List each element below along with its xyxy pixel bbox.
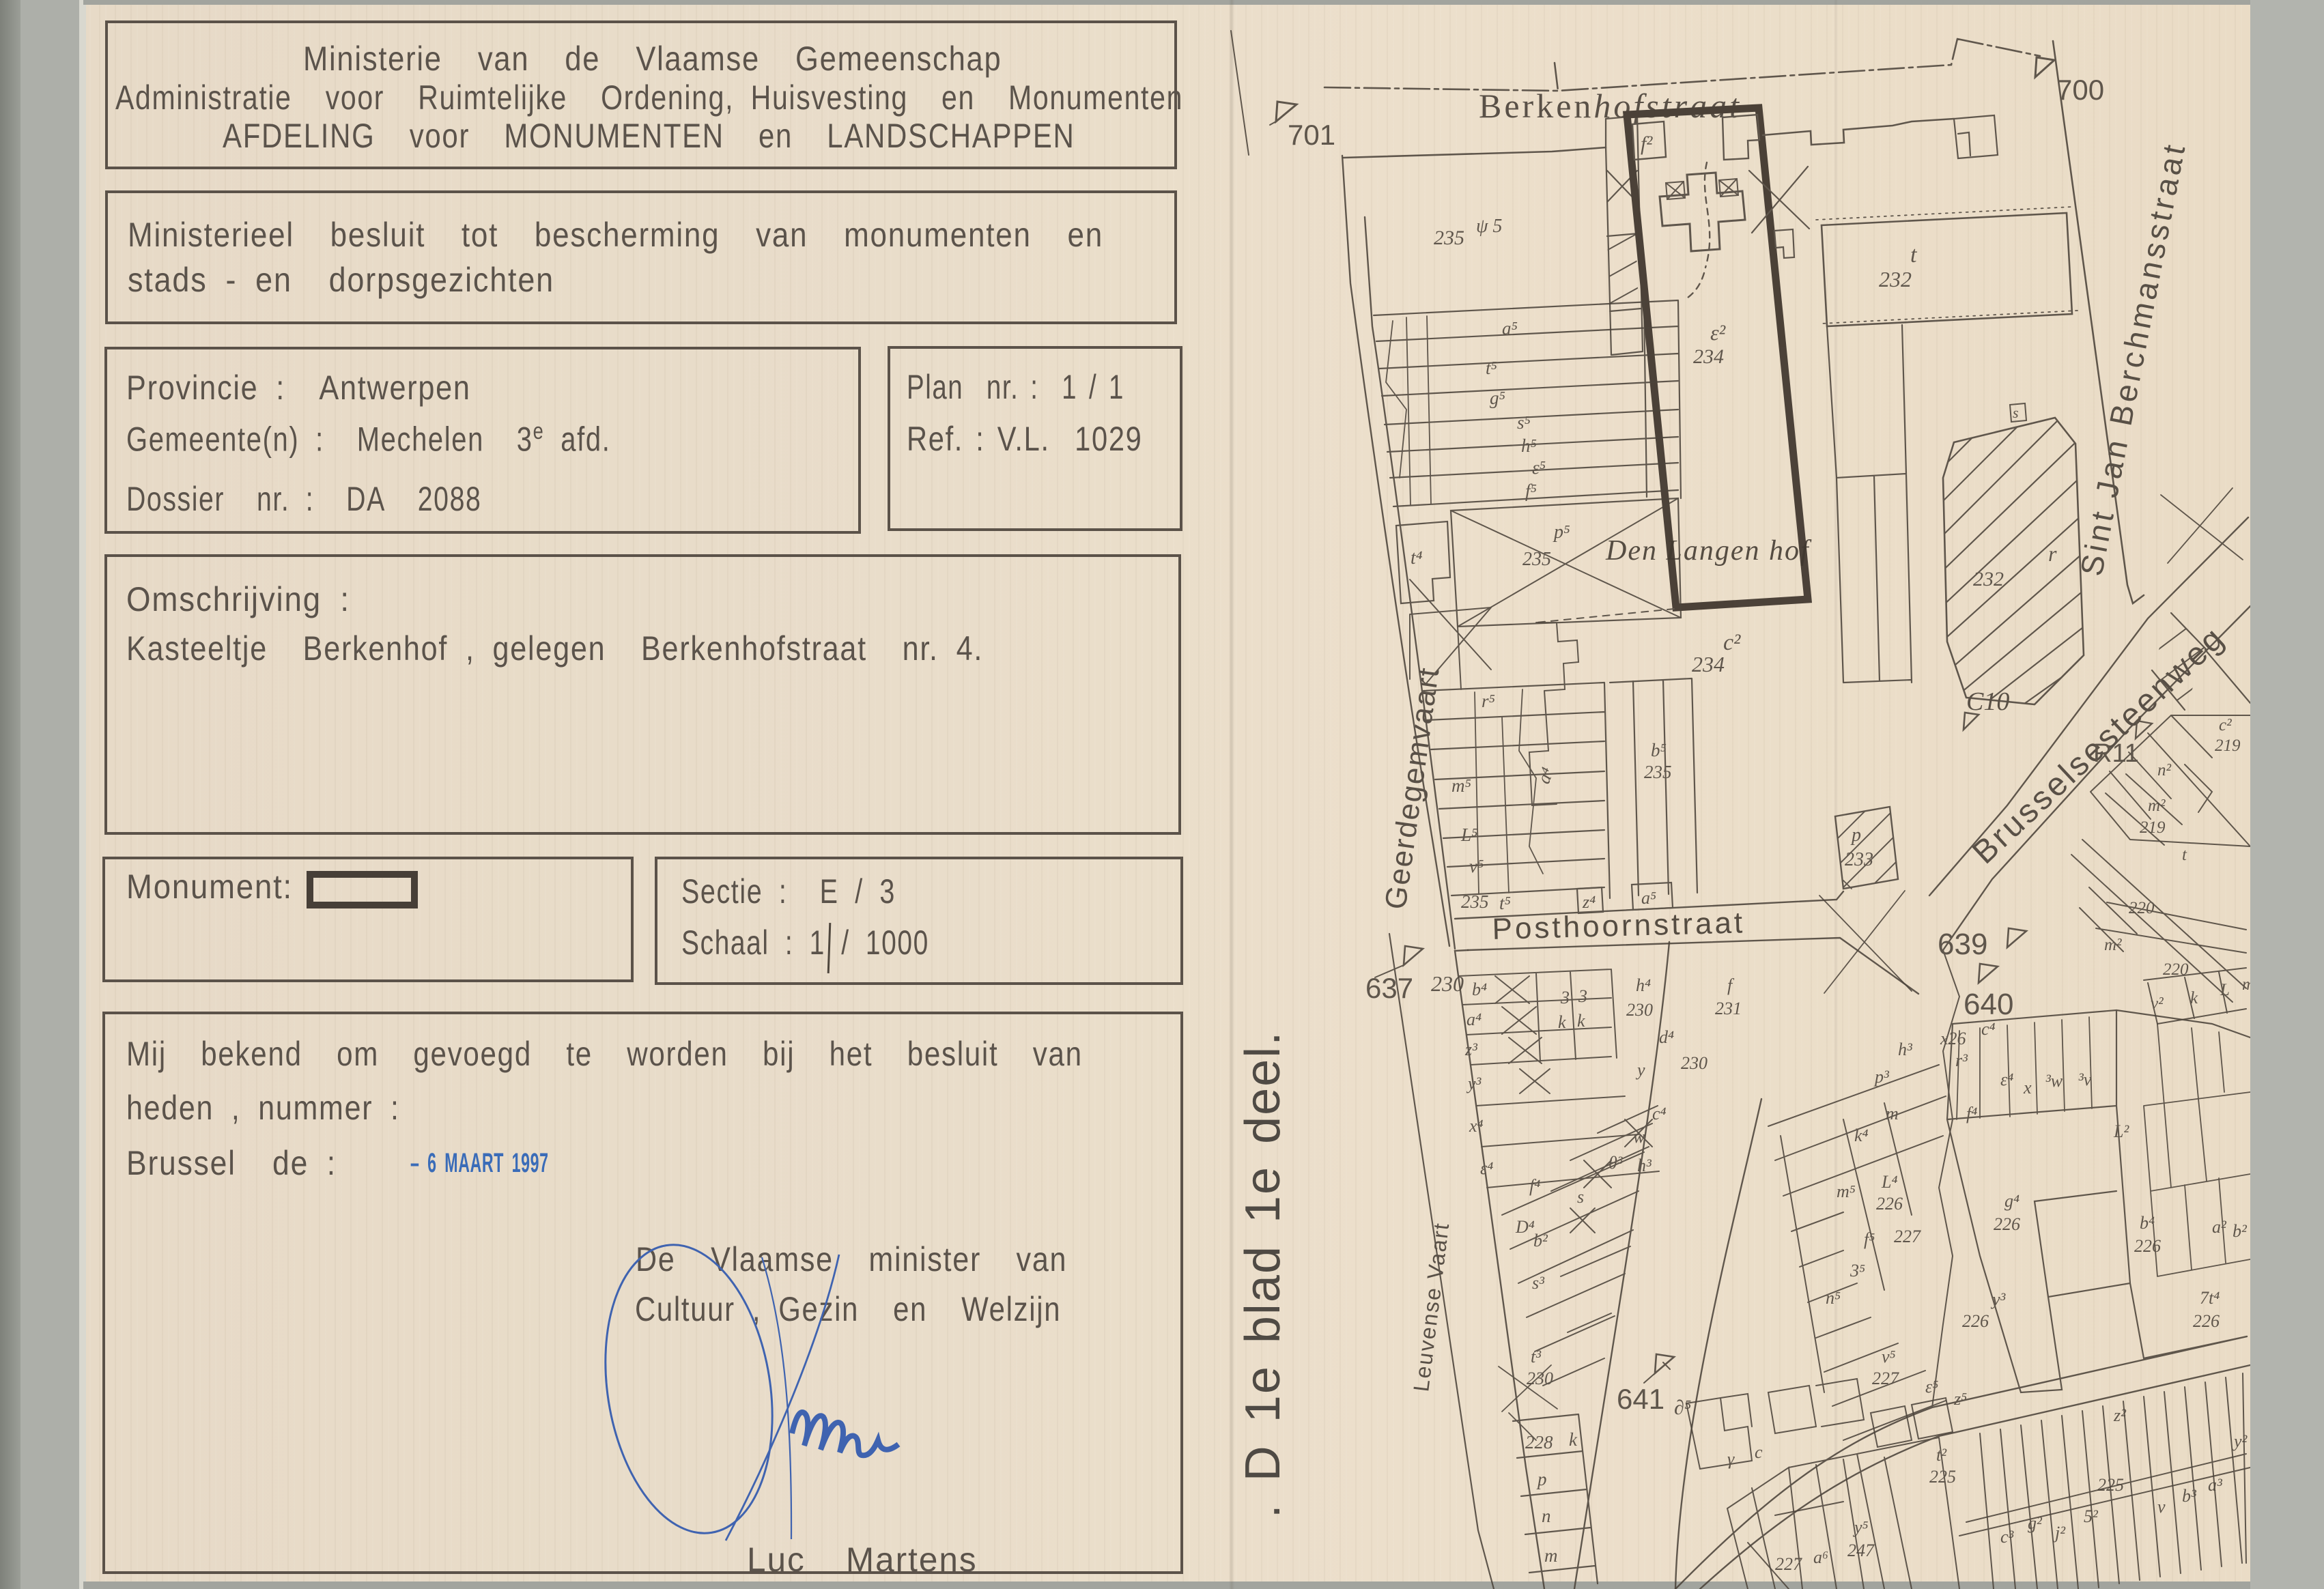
svg-text:227: 227 <box>1894 1227 1921 1246</box>
svg-text:m: m <box>1886 1104 1899 1123</box>
svg-text:Berkenhofstraat: Berkenhofstraat <box>1479 87 1742 125</box>
svg-text:233: 233 <box>1845 849 1873 870</box>
svg-text:k⁴: k⁴ <box>1854 1126 1869 1145</box>
svg-text:b⁵: b⁵ <box>1651 740 1667 760</box>
svg-text:g⁴: g⁴ <box>2004 1191 2020 1211</box>
svg-text:b²: b² <box>2233 1221 2248 1241</box>
svg-text:r: r <box>2048 541 2057 566</box>
svg-text:c⁴: c⁴ <box>1981 1019 1996 1039</box>
svg-text:p³: p³ <box>1873 1067 1890 1087</box>
svg-text:h³: h³ <box>1637 1156 1652 1175</box>
svg-text:235: 235 <box>1434 227 1464 249</box>
svg-text:Den Langen hof: Den Langen hof <box>1605 535 1812 567</box>
svg-text:234: 234 <box>1693 345 1724 368</box>
svg-text:v²: v² <box>2151 994 2164 1013</box>
svg-text:d⁴: d⁴ <box>1659 1027 1674 1047</box>
svg-text:f⁵: f⁵ <box>1864 1229 1875 1249</box>
svg-text:t⁵: t⁵ <box>1499 893 1511 913</box>
svg-text:n: n <box>1542 1506 1551 1526</box>
svg-text:c⁴: c⁴ <box>1652 1104 1667 1123</box>
svg-text:k: k <box>1569 1429 1578 1450</box>
svg-text:3: 3 <box>1560 988 1570 1007</box>
svg-text:227: 227 <box>1775 1554 1802 1574</box>
svg-text:s³: s³ <box>1532 1273 1545 1293</box>
svg-text:ε⁴: ε⁴ <box>2000 1070 2013 1089</box>
svg-text:ε²: ε² <box>1710 320 1727 345</box>
svg-text:h⁴: h⁴ <box>1636 975 1651 995</box>
svg-text:a⁵: a⁵ <box>1502 318 1518 339</box>
svg-text:x26: x26 <box>1940 1029 1966 1048</box>
svg-text:n⁵: n⁵ <box>1826 1288 1841 1308</box>
svg-text:700: 700 <box>2056 74 2104 106</box>
svg-text:p⁵: p⁵ <box>1553 521 1570 543</box>
svg-text:R11: R11 <box>2093 739 2139 768</box>
svg-text:y²: y² <box>2232 1431 2248 1451</box>
svg-text:f⁵: f⁵ <box>1525 481 1537 501</box>
svg-text:y³: y³ <box>1990 1289 2007 1309</box>
svg-text:b³: b³ <box>2182 1486 2197 1506</box>
svg-text:226: 226 <box>2193 1311 2220 1331</box>
svg-text:c: c <box>1755 1442 1763 1462</box>
svg-text:v⁵: v⁵ <box>1882 1347 1896 1366</box>
svg-text:637: 637 <box>1365 972 1413 1004</box>
svg-text:235: 235 <box>1461 891 1489 912</box>
svg-text:234: 234 <box>1692 652 1725 676</box>
svg-text:230: 230 <box>1681 1053 1707 1073</box>
svg-text:220: 220 <box>2129 899 2155 917</box>
svg-text:c²: c² <box>2219 716 2232 734</box>
svg-text:235: 235 <box>1522 549 1551 570</box>
svg-text:m⁵: m⁵ <box>1837 1182 1856 1201</box>
svg-text:m²: m² <box>2148 797 2166 815</box>
svg-text:641: 641 <box>1617 1383 1664 1415</box>
svg-text:h⁵: h⁵ <box>1521 435 1537 456</box>
svg-text:a⁴: a⁴ <box>1533 764 1557 786</box>
svg-text:r⁵: r⁵ <box>1482 691 1495 711</box>
svg-text:a²: a² <box>2212 1217 2227 1237</box>
svg-text:m: m <box>1544 1545 1558 1566</box>
svg-text:701: 701 <box>1288 119 1335 151</box>
svg-text:220: 220 <box>2163 960 2189 979</box>
svg-text:228: 228 <box>1525 1432 1553 1452</box>
svg-text:226: 226 <box>1962 1311 1989 1331</box>
svg-text:b⁴: b⁴ <box>2140 1213 2155 1233</box>
svg-text:t²: t² <box>1936 1445 1947 1465</box>
svg-text:k: k <box>1577 1011 1585 1031</box>
svg-text:226: 226 <box>2134 1236 2161 1256</box>
svg-text:w: w <box>1633 1127 1645 1147</box>
svg-text:p: p <box>1536 1469 1547 1489</box>
svg-text:ε⁵: ε⁵ <box>1532 457 1546 478</box>
svg-text:225: 225 <box>1929 1467 1956 1487</box>
svg-text:k: k <box>2190 989 2198 1007</box>
svg-text:235: 235 <box>1644 762 1672 782</box>
svg-text:ε⁵: ε⁵ <box>1925 1377 1938 1397</box>
svg-text:t: t <box>2182 846 2187 864</box>
svg-text:219: 219 <box>2215 736 2241 755</box>
svg-text:z³: z³ <box>1464 1040 1478 1059</box>
svg-text:232: 232 <box>1879 267 1912 291</box>
svg-text:7t⁴: 7t⁴ <box>2200 1288 2220 1308</box>
svg-text:j²: j² <box>2053 1523 2066 1543</box>
svg-text:C10: C10 <box>1966 687 2009 716</box>
svg-text:g⁵: g⁵ <box>1490 388 1505 408</box>
svg-text:3: 3 <box>1578 986 1587 1006</box>
svg-text:v: v <box>2157 1497 2166 1517</box>
svg-text:t³: t³ <box>1531 1347 1542 1366</box>
svg-text:f⁴: f⁴ <box>1529 1176 1540 1196</box>
svg-text:t: t <box>1910 242 1918 268</box>
svg-text:226: 226 <box>1876 1194 1903 1214</box>
svg-text:k: k <box>1558 1012 1566 1032</box>
svg-text:ψ 5: ψ 5 <box>1476 216 1502 237</box>
svg-text:f²: f² <box>1641 132 1653 155</box>
svg-text:³w: ³w <box>2045 1071 2063 1091</box>
svg-text:r³: r³ <box>1955 1050 1968 1070</box>
svg-text:L⁴: L⁴ <box>1881 1172 1898 1192</box>
svg-text:θ³: θ³ <box>1609 1153 1624 1173</box>
svg-text:m: m <box>2242 975 2250 994</box>
svg-text:n²: n² <box>2157 761 2172 779</box>
svg-text:ε⁴: ε⁴ <box>1480 1158 1493 1178</box>
svg-text:Geerdegemvaart: Geerdegemvaart <box>1378 665 1445 912</box>
svg-text:z⁴: z⁴ <box>1582 892 1596 912</box>
svg-text:D⁴: D⁴ <box>1515 1217 1535 1237</box>
svg-text:γ: γ <box>1727 1449 1735 1469</box>
svg-text:v⁵: v⁵ <box>1469 856 1484 876</box>
svg-text:t⁵: t⁵ <box>1486 358 1497 378</box>
svg-text:m⁵: m⁵ <box>1451 775 1471 796</box>
svg-text:f⁴: f⁴ <box>1966 1104 1977 1123</box>
svg-text:b²: b² <box>1533 1231 1548 1250</box>
svg-text:a⁶: a⁶ <box>1813 1547 1828 1567</box>
svg-text:x⁴: x⁴ <box>1469 1116 1484 1136</box>
svg-text:m²: m² <box>2104 936 2122 954</box>
svg-text:p: p <box>1850 825 1861 846</box>
svg-text:640: 640 <box>1964 988 2013 1021</box>
svg-text:c³: c³ <box>2000 1527 2015 1547</box>
svg-text:3⁵: 3⁵ <box>1850 1261 1865 1280</box>
svg-text:a⁵: a⁵ <box>1641 888 1656 908</box>
svg-text:Sint Jan Berchmansstraat: Sint Jan Berchmansstraat <box>2073 139 2192 579</box>
svg-text:s⁵: s⁵ <box>1517 412 1531 433</box>
svg-text:Posthoornstraat: Posthoornstraat <box>1492 906 1746 946</box>
svg-text:a⁴: a⁴ <box>1466 1010 1482 1029</box>
svg-text:s: s <box>1577 1187 1584 1207</box>
svg-text:L: L <box>2220 981 2230 999</box>
svg-text:y: y <box>1635 1060 1645 1080</box>
svg-text:226: 226 <box>1994 1214 2020 1234</box>
svg-text:s: s <box>2013 404 2019 421</box>
svg-text:L⁵: L⁵ <box>1460 825 1477 845</box>
svg-text:Leuvense Vaart: Leuvense Vaart <box>1408 1221 1454 1393</box>
svg-text:L²: L² <box>2113 1121 2129 1141</box>
svg-text:c²: c² <box>1723 630 1741 655</box>
svg-text:z⁵: z⁵ <box>1953 1389 1967 1409</box>
svg-text:227: 227 <box>1872 1369 1899 1388</box>
svg-text:f: f <box>1727 975 1735 995</box>
svg-text:y³: y³ <box>1466 1074 1482 1093</box>
svg-text:232: 232 <box>1973 568 2004 590</box>
svg-text:231: 231 <box>1715 999 1742 1018</box>
svg-text:b⁴: b⁴ <box>1472 979 1487 999</box>
svg-text:³v: ³v <box>2078 1070 2092 1089</box>
svg-text:230: 230 <box>1626 1000 1653 1020</box>
svg-text:247: 247 <box>1847 1541 1875 1560</box>
svg-text:x: x <box>2023 1078 2032 1098</box>
svg-text:t⁴: t⁴ <box>1411 547 1423 569</box>
svg-text:h³: h³ <box>1898 1040 1913 1059</box>
svg-text:g²: g² <box>2028 1513 2043 1533</box>
